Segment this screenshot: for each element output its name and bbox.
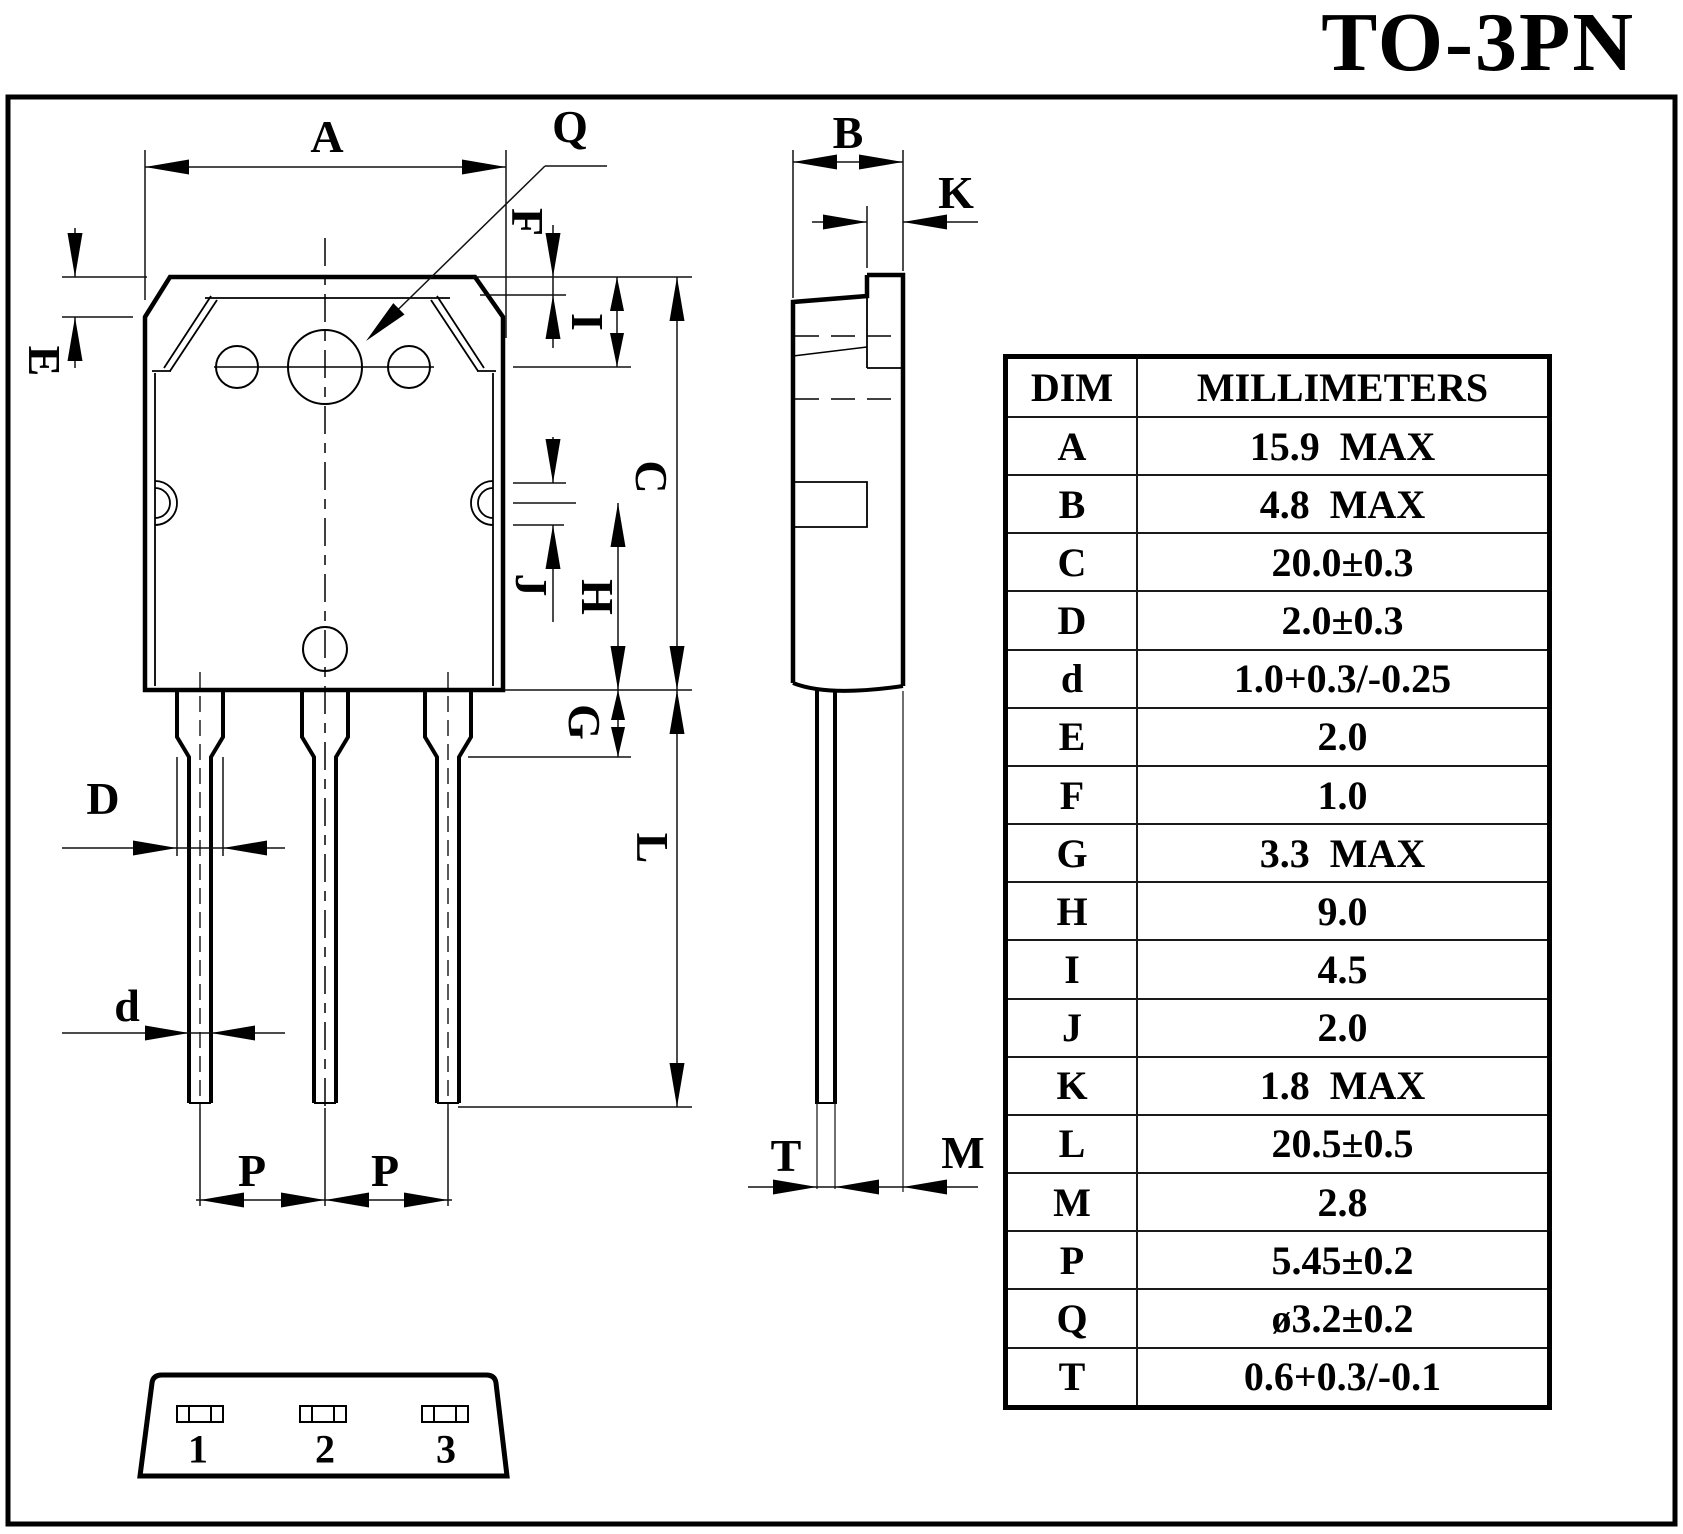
dim-label-e: E [21, 346, 67, 377]
front-view-dimensions [62, 150, 692, 1206]
front-view-drawing [145, 238, 503, 1112]
pin-number-1: 1 [188, 1426, 208, 1473]
dim-cell: d [1006, 650, 1138, 708]
dim-label-c: C [628, 460, 674, 493]
mm-cell: 1.8 MAX [1137, 1057, 1550, 1115]
dim-cell: Q [1006, 1289, 1138, 1347]
table-row: M2.8 [1006, 1173, 1550, 1231]
mm-cell: 4.5 [1137, 940, 1550, 998]
dim-label-l: L [629, 833, 675, 864]
dim-label-f: F [504, 208, 550, 236]
package-body-outline [145, 277, 503, 690]
dim-cell: P [1006, 1231, 1138, 1289]
table-row: H9.0 [1006, 882, 1550, 940]
mm-cell: ø3.2±0.2 [1137, 1289, 1550, 1347]
dim-cell: A [1006, 417, 1138, 475]
mm-cell: 20.0±0.3 [1137, 533, 1550, 591]
table-row: I4.5 [1006, 940, 1550, 998]
dim-cell: G [1006, 824, 1138, 882]
dim-cell: E [1006, 708, 1138, 766]
dim-cell: L [1006, 1115, 1138, 1173]
table-row: J2.0 [1006, 999, 1550, 1057]
dim-label-small-d: d [114, 983, 140, 1029]
mm-cell: 2.8 [1137, 1173, 1550, 1231]
mm-cell: 1.0 [1137, 766, 1550, 824]
mm-cell: 0.6+0.3/-0.1 [1137, 1348, 1550, 1408]
dim-label-k: K [938, 170, 974, 216]
millimeters-column-header: MILLIMETERS [1137, 357, 1550, 418]
dim-label-big-d: D [86, 776, 119, 822]
dim-cell: I [1006, 940, 1138, 998]
dimension-table: DIM MILLIMETERS A15.9 MAX B4.8 MAX C20.0… [1003, 354, 1552, 1410]
dim-label-t: T [771, 1133, 802, 1179]
table-row: A15.9 MAX [1006, 417, 1550, 475]
dim-cell: D [1006, 591, 1138, 649]
dim-column-header: DIM [1006, 357, 1138, 418]
pin-cross-sections [177, 1406, 468, 1422]
mm-cell: 2.0 [1137, 999, 1550, 1057]
dim-label-b: B [833, 110, 864, 156]
dim-label-p-right: P [371, 1148, 399, 1194]
lead-1 [177, 672, 223, 1108]
table-row: d1.0+0.3/-0.25 [1006, 650, 1550, 708]
dim-cell: T [1006, 1348, 1138, 1408]
mm-cell: 15.9 MAX [1137, 417, 1550, 475]
pin-number-3: 3 [436, 1426, 456, 1473]
mm-cell: 4.8 MAX [1137, 475, 1550, 533]
mm-cell: 20.5±0.5 [1137, 1115, 1550, 1173]
dim-label-a: A [310, 114, 343, 160]
dim-label-q: Q [552, 104, 588, 150]
dim-cell: B [1006, 475, 1138, 533]
side-view-drawing [793, 275, 903, 1103]
side-notch-profile [795, 482, 867, 527]
table-row: K1.8 MAX [1006, 1057, 1550, 1115]
table-row: C20.0±0.3 [1006, 533, 1550, 591]
side-view-dimensions [748, 150, 978, 1192]
table-row: G3.3 MAX [1006, 824, 1550, 882]
table-row: D2.0±0.3 [1006, 591, 1550, 649]
dim-label-j: J [508, 574, 554, 597]
mm-cell: 9.0 [1137, 882, 1550, 940]
table-row: P5.45±0.2 [1006, 1231, 1550, 1289]
table-row: L20.5±0.5 [1006, 1115, 1550, 1173]
dim-cell: M [1006, 1173, 1138, 1231]
mm-cell: 2.0 [1137, 708, 1550, 766]
dim-label-p-left: P [238, 1148, 266, 1194]
dim-label-g: G [561, 704, 607, 740]
mm-cell: 2.0±0.3 [1137, 591, 1550, 649]
dim-cell: K [1006, 1057, 1138, 1115]
dim-cell: F [1006, 766, 1138, 824]
table-row: Qø3.2±0.2 [1006, 1289, 1550, 1347]
table-row: E2.0 [1006, 708, 1550, 766]
mm-cell: 5.45±0.2 [1137, 1231, 1550, 1289]
dim-label-m: M [941, 1130, 984, 1176]
pin-number-2: 2 [315, 1426, 335, 1473]
datasheet-page: TO-3PN [0, 0, 1683, 1534]
lead-3 [425, 672, 471, 1108]
mm-cell: 3.3 MAX [1137, 824, 1550, 882]
table-header-row: DIM MILLIMETERS [1006, 357, 1550, 418]
mm-cell: 1.0+0.3/-0.25 [1137, 650, 1550, 708]
dim-cell: C [1006, 533, 1138, 591]
dim-label-h: H [574, 579, 620, 615]
table-row: T0.6+0.3/-0.1 [1006, 1348, 1550, 1408]
table-row: B4.8 MAX [1006, 475, 1550, 533]
dim-label-i: I [564, 313, 610, 331]
dim-cell: J [1006, 999, 1138, 1057]
dim-cell: H [1006, 882, 1138, 940]
table-row: F1.0 [1006, 766, 1550, 824]
